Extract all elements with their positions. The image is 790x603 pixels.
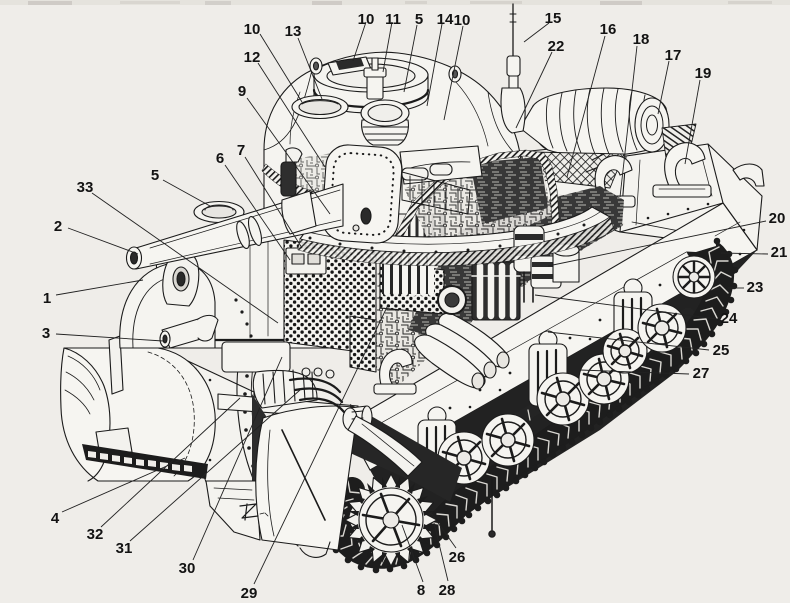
- svg-text:21: 21: [771, 244, 788, 261]
- svg-text:10: 10: [244, 21, 261, 38]
- svg-text:6: 6: [216, 150, 224, 167]
- svg-text:12: 12: [244, 49, 261, 66]
- svg-text:7: 7: [237, 142, 245, 159]
- svg-text:27: 27: [693, 365, 710, 382]
- svg-text:23: 23: [747, 279, 764, 296]
- svg-text:15: 15: [545, 10, 562, 27]
- svg-text:30: 30: [179, 560, 196, 577]
- svg-text:10: 10: [358, 11, 375, 28]
- svg-text:11: 11: [385, 11, 401, 28]
- svg-text:5: 5: [415, 11, 423, 28]
- svg-text:18: 18: [633, 31, 650, 48]
- svg-text:16: 16: [600, 21, 617, 38]
- svg-text:25: 25: [713, 342, 730, 359]
- svg-text:26: 26: [449, 549, 466, 566]
- svg-text:24: 24: [721, 310, 738, 327]
- svg-text:8: 8: [417, 582, 425, 599]
- svg-text:1: 1: [43, 290, 51, 307]
- svg-text:9: 9: [238, 83, 246, 100]
- svg-text:2: 2: [54, 218, 62, 235]
- svg-text:29: 29: [241, 585, 258, 602]
- svg-text:4: 4: [51, 510, 60, 527]
- svg-text:33: 33: [77, 179, 94, 196]
- svg-text:19: 19: [695, 65, 712, 82]
- svg-text:10: 10: [454, 12, 471, 29]
- svg-text:22: 22: [548, 38, 565, 55]
- svg-text:32: 32: [87, 526, 104, 543]
- svg-text:17: 17: [665, 47, 682, 64]
- svg-text:28: 28: [439, 582, 456, 599]
- svg-text:31: 31: [116, 540, 133, 557]
- svg-text:3: 3: [42, 325, 50, 342]
- svg-text:14: 14: [437, 11, 454, 28]
- svg-text:20: 20: [769, 210, 786, 227]
- svg-text:5: 5: [151, 167, 159, 184]
- svg-text:13: 13: [285, 23, 302, 40]
